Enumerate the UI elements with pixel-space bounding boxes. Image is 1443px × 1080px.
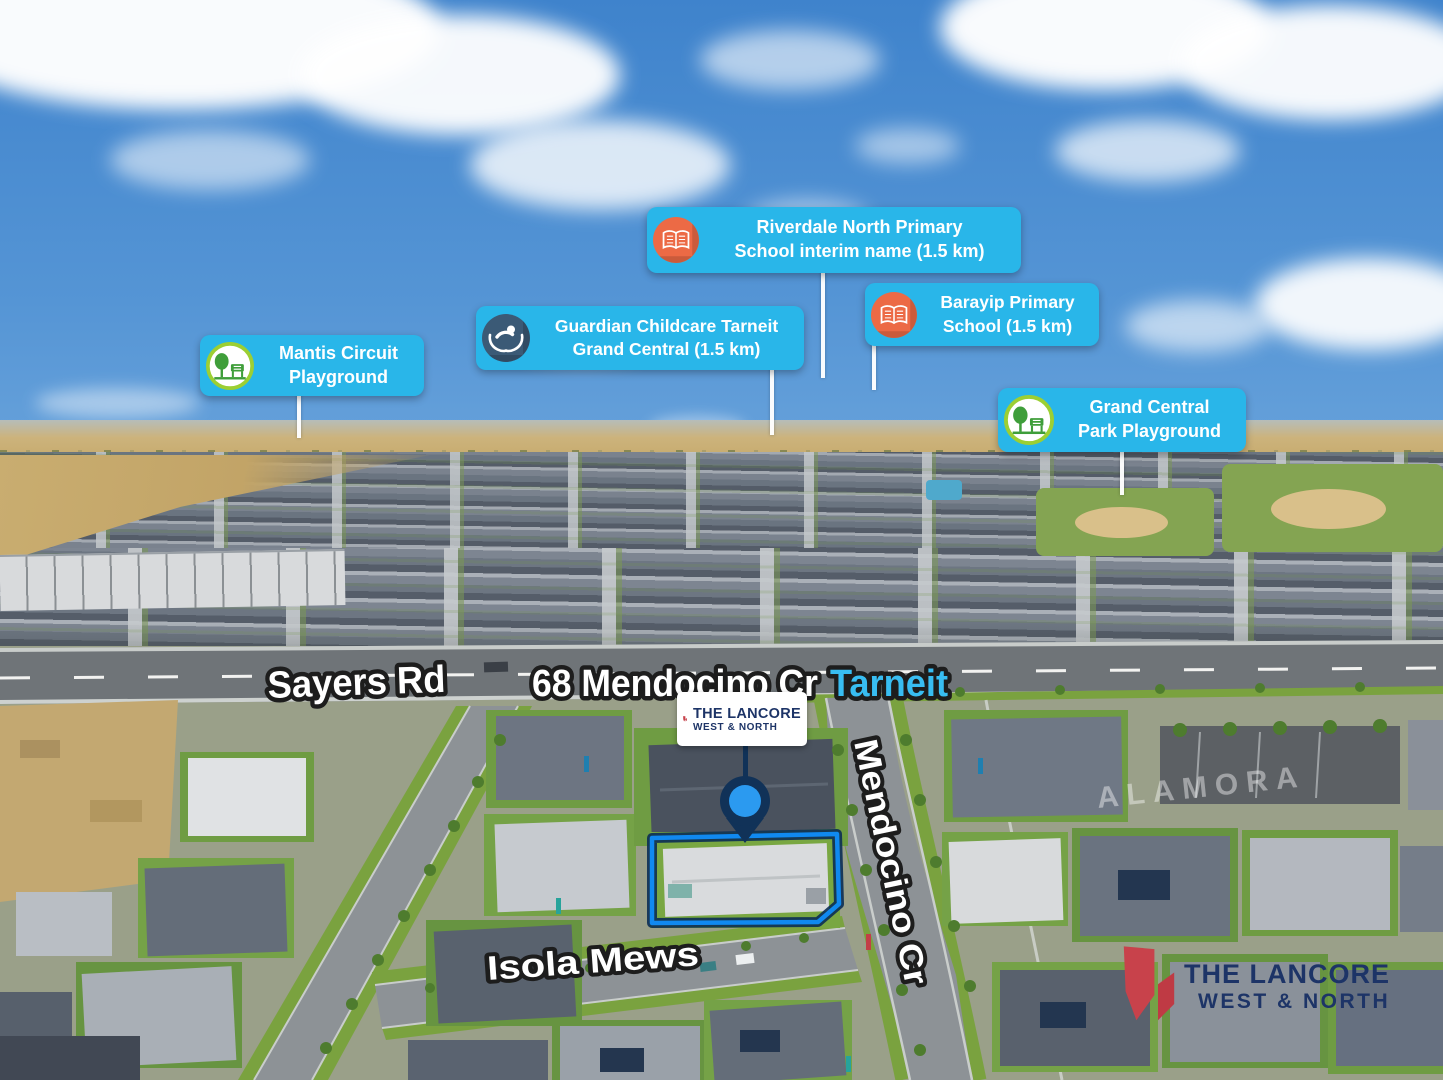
cloud bbox=[35, 388, 200, 418]
callout-line2: Grand Central (1.5 km) bbox=[539, 338, 794, 361]
cloud bbox=[700, 30, 880, 90]
callout-line1: Guardian Childcare Tarneit bbox=[539, 315, 794, 338]
brand-tagline: WEST & NORTH bbox=[693, 722, 801, 733]
playground-icon bbox=[206, 342, 254, 390]
leader-line-riverdale bbox=[821, 262, 825, 378]
callout-line2: Playground bbox=[263, 366, 414, 390]
callout-line2: School interim name (1.5 km) bbox=[708, 240, 1011, 264]
cloud bbox=[1255, 258, 1443, 350]
townhouse-row bbox=[0, 549, 345, 611]
playground-sand bbox=[1075, 507, 1168, 538]
callout-riverdale-school: Riverdale North Primary School interim n… bbox=[647, 207, 1021, 273]
callout-barayip-school: Barayip Primary School (1.5 km) bbox=[865, 283, 1099, 346]
cloud bbox=[1125, 300, 1270, 352]
brand-name: THE LANCORE bbox=[693, 706, 801, 722]
brand-text: THE LANCORE WEST & NORTH bbox=[693, 706, 801, 733]
aerial-location-map: ALAMORA Riverdale North Primary School i… bbox=[0, 0, 1443, 1080]
lancore-logo-mark-icon bbox=[1122, 937, 1176, 1035]
callout-line1: Grand Central bbox=[1063, 396, 1236, 420]
cloud bbox=[855, 128, 960, 164]
cloud bbox=[1055, 120, 1240, 182]
cloud bbox=[110, 130, 310, 190]
playground-icon bbox=[1004, 395, 1054, 445]
callout-mantis-playground: Mantis Circuit Playground bbox=[200, 335, 424, 396]
callout-line2: School (1.5 km) bbox=[926, 315, 1089, 338]
cloud bbox=[470, 120, 730, 210]
childcare-icon bbox=[482, 314, 530, 362]
callout-text: Guardian Childcare Tarneit Grand Central… bbox=[539, 315, 794, 361]
callout-line1: Riverdale North Primary bbox=[708, 216, 1011, 240]
callout-text: Mantis Circuit Playground bbox=[263, 342, 414, 390]
pin-connector-line bbox=[743, 744, 748, 804]
playground-sand bbox=[1271, 489, 1386, 529]
grand-central-park bbox=[1036, 488, 1214, 556]
callout-line1: Barayip Primary bbox=[926, 291, 1089, 314]
callout-line1: Mantis Circuit bbox=[263, 342, 414, 366]
callout-grand-central-playground: Grand Central Park Playground bbox=[998, 388, 1246, 452]
swimming-pool bbox=[926, 480, 962, 500]
callout-text: Grand Central Park Playground bbox=[1063, 396, 1236, 444]
callout-text: Riverdale North Primary School interim n… bbox=[708, 216, 1011, 264]
cloud bbox=[300, 15, 620, 135]
leader-line-guardian bbox=[770, 361, 774, 435]
book-icon bbox=[653, 217, 699, 263]
lancore-brand-logo: THE LANCORE WEST & NORTH bbox=[1122, 934, 1432, 1038]
callout-guardian-childcare: Guardian Childcare Tarneit Grand Central… bbox=[476, 306, 804, 370]
callout-line2: Park Playground bbox=[1063, 420, 1236, 444]
cloud bbox=[1180, 5, 1443, 120]
book-icon bbox=[871, 292, 917, 338]
park-right bbox=[1222, 464, 1443, 552]
lancore-logo-mark-icon bbox=[683, 700, 687, 738]
brand-tagline: WEST & NORTH bbox=[1184, 990, 1390, 1014]
callout-text: Barayip Primary School (1.5 km) bbox=[926, 291, 1089, 337]
lancore-brand-badge: THE LANCORE WEST & NORTH bbox=[677, 692, 807, 746]
brand-name: THE LANCORE bbox=[1184, 959, 1390, 990]
brand-text: THE LANCORE WEST & NORTH bbox=[1184, 959, 1390, 1014]
